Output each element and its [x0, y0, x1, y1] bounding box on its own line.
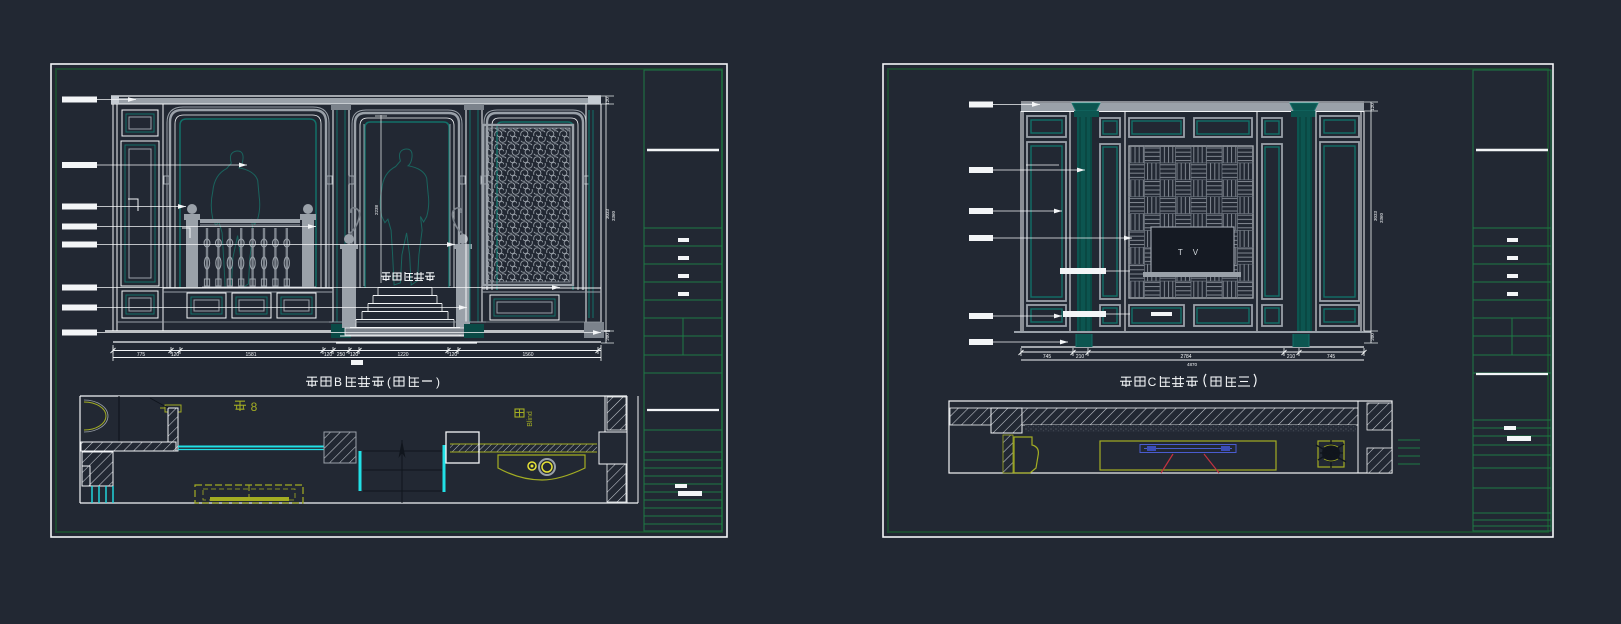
svg-text:2238: 2238 — [374, 204, 379, 215]
svg-text:210: 210 — [1287, 354, 1296, 360]
svg-text:1560: 1560 — [522, 352, 533, 358]
svg-text:3360: 3360 — [1379, 212, 1384, 223]
svg-text:(: ( — [387, 375, 391, 389]
svg-text:1581: 1581 — [245, 352, 256, 358]
svg-text:T V: T V — [1178, 248, 1202, 257]
svg-text:210: 210 — [1076, 354, 1085, 360]
svg-text:8: 8 — [251, 400, 258, 414]
svg-text:120: 120 — [1370, 103, 1375, 111]
svg-text:Blind: Blind — [527, 411, 534, 427]
svg-text:120: 120 — [605, 97, 610, 105]
svg-text:120: 120 — [350, 352, 359, 358]
svg-text:3033: 3033 — [1373, 210, 1378, 221]
svg-text:B: B — [334, 375, 342, 389]
svg-text:1220: 1220 — [397, 352, 408, 358]
svg-text:250: 250 — [337, 352, 346, 358]
svg-text:120: 120 — [324, 352, 333, 358]
svg-text:C: C — [1148, 375, 1157, 389]
svg-text:120: 120 — [449, 352, 458, 358]
svg-text:775: 775 — [137, 352, 146, 358]
svg-text:745: 745 — [1043, 354, 1052, 360]
svg-text:200: 200 — [1370, 333, 1375, 341]
svg-text:745: 745 — [1327, 354, 1336, 360]
svg-text:4870: 4870 — [1187, 362, 1198, 367]
svg-text:3360: 3360 — [611, 210, 616, 221]
svg-text:120: 120 — [171, 352, 180, 358]
svg-text:2784: 2784 — [1180, 354, 1191, 360]
svg-text:): ) — [436, 375, 440, 389]
svg-text:200: 200 — [605, 333, 610, 341]
svg-text:3033: 3033 — [605, 208, 610, 219]
